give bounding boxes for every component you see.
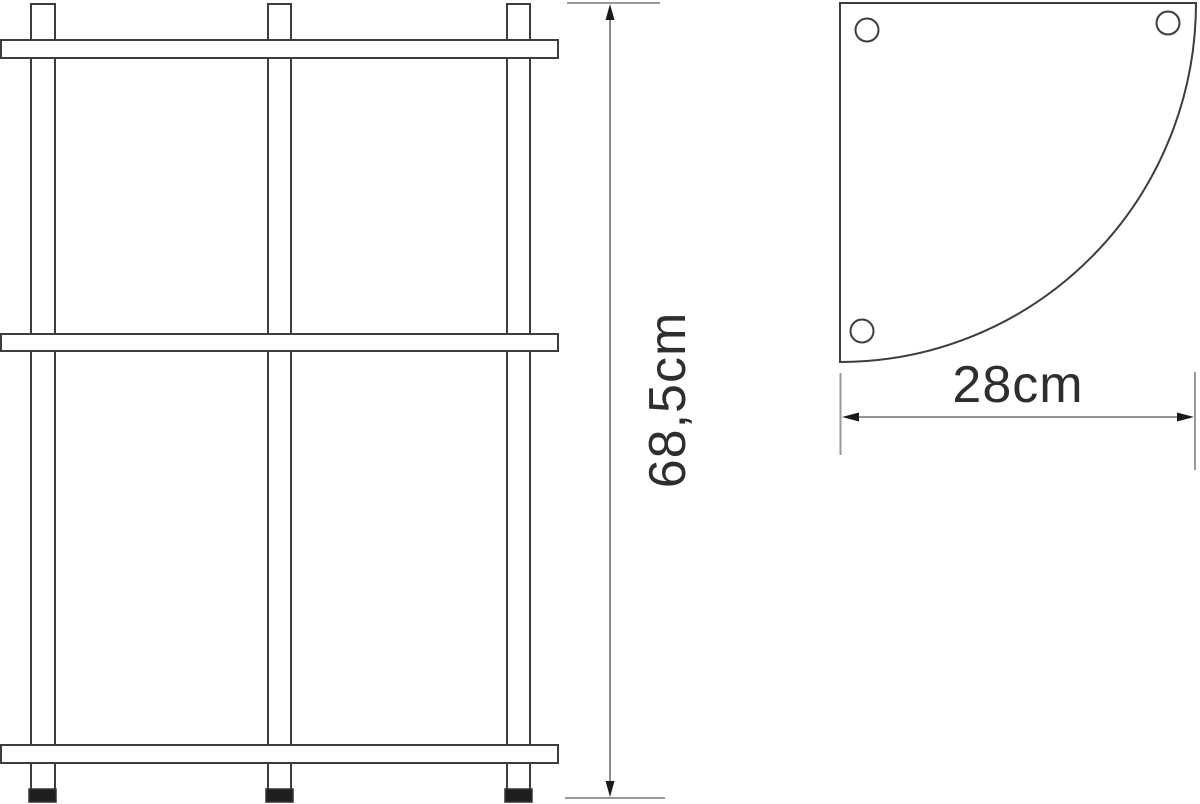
shelf-post-left — [31, 4, 55, 790]
top-view — [840, 3, 1196, 362]
height-dimension-label: 68,5cm — [640, 290, 696, 510]
shelf-board-top — [1, 40, 558, 58]
front-view — [1, 4, 558, 802]
post-foot-middle — [266, 789, 293, 802]
mount-hole-bottom-left — [851, 320, 874, 343]
mount-hole-top-right — [1157, 12, 1180, 35]
mount-hole-top-left — [856, 19, 879, 42]
shelf-post-middle — [268, 4, 291, 790]
shelf-board-bottom — [1, 745, 558, 763]
post-foot-right — [505, 789, 532, 802]
shelf-board-middle — [1, 334, 558, 351]
post-foot-left — [29, 789, 56, 802]
shelf-post-right — [507, 4, 530, 790]
arrow-down-icon — [606, 781, 615, 797]
arrow-up-icon — [606, 4, 615, 20]
dimension-diagram: 68,5cm 28cm — [0, 0, 1200, 804]
arrow-right-icon — [1177, 413, 1194, 422]
width-dimension-label: 28cm — [908, 357, 1128, 413]
arrow-left-icon — [842, 413, 859, 422]
quarter-circle-shelf-outline — [840, 3, 1196, 362]
